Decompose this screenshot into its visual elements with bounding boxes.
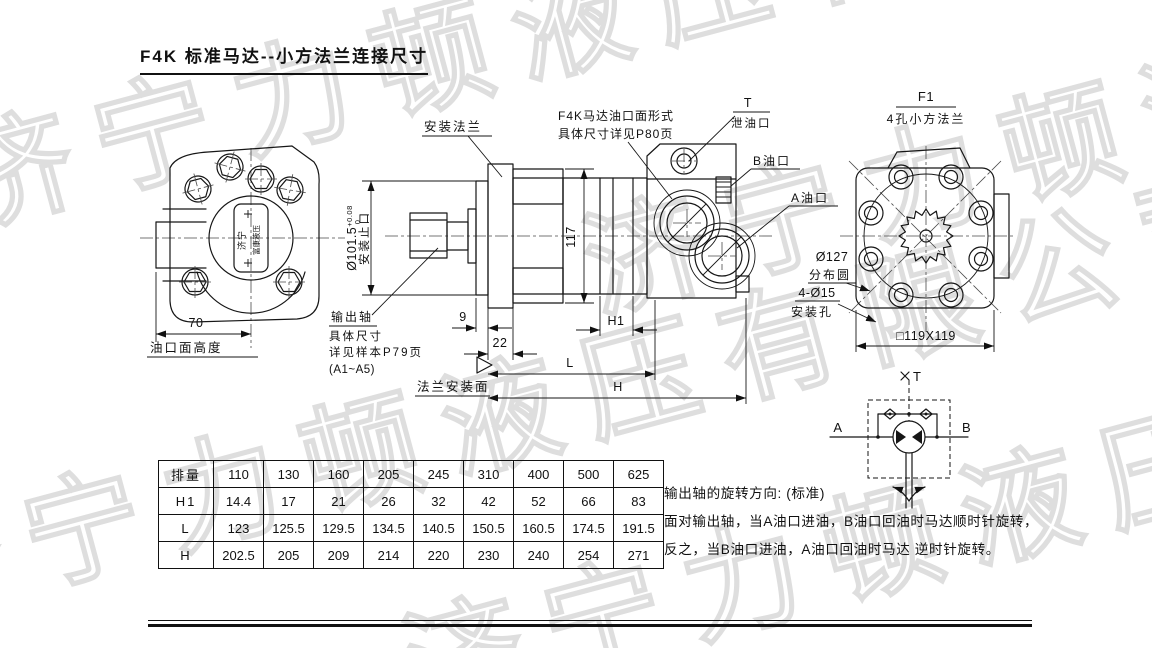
dim-70-value: 70 [189, 316, 204, 330]
a-port-label: A油口 [791, 191, 829, 205]
dim-h1-label: H1 [608, 314, 625, 328]
row-header: H1 [159, 488, 214, 515]
row-header: H [159, 542, 214, 569]
table-row: H 202.5205209214220230240254271 [159, 542, 664, 569]
f1-label: F1 [918, 89, 934, 104]
table-row: H1 14.41721263242526683 [159, 488, 664, 515]
output-shaft-label: 输出轴 [331, 309, 373, 324]
row-header: 排量 [159, 461, 214, 488]
schematic-a-label: A [833, 420, 842, 435]
drawing-page: 济宁力顿液压有限公司 济宁力顿液压有限公司 济宁力顿液压有限公司 济宁力顿液压有… [0, 0, 1152, 648]
output-shaft-note-1: 具体尺寸 [329, 329, 383, 343]
dim-l-label: L [566, 356, 573, 370]
port-face-note-2: 具体尺寸详见P80页 [558, 126, 673, 141]
pilot-spigot-label: 安装止口 [357, 211, 371, 265]
dimension-table: 排量 110130160205245310400500625 H1 14.417… [158, 460, 664, 569]
dim-22-value: 22 [493, 336, 508, 350]
drain-port-label: 泄油口 [731, 116, 772, 130]
port-face-note-1: F4K马达油口面形式 [558, 109, 674, 123]
dim-9-value: 9 [459, 310, 466, 324]
mounting-holes-dia: 4-Ø15 [798, 286, 835, 300]
schematic-t-label: T [913, 369, 921, 384]
table-row: 排量 110130160205245310400500625 [159, 461, 664, 488]
output-shaft-note-2: 详见样本P79页 [329, 345, 423, 359]
b-port-label: B油口 [753, 154, 791, 168]
rotation-notes: 输出轴的旋转方向: (标准) 面对输出轴，当A油口进油，B油口回油时马达顺时针旋… [664, 486, 1050, 570]
left-view-rear: 济宁 富康液压 70 油口面高度 [140, 146, 345, 357]
square-dim-value: □119X119 [896, 329, 956, 343]
table-row: L 123125.5129.5134.5140.5150.5160.5174.5… [159, 515, 664, 542]
schematic-b-label: B [962, 420, 971, 435]
t-port-label: T [744, 96, 752, 110]
rotation-note-line3: 反之，当B油口进油，A油口回油时马达 逆时针旋转。 [664, 542, 1050, 558]
right-view-flange: F1 4孔小方法兰 Ø127 分布圆 [791, 89, 1016, 352]
bolt-circle-dia: Ø127 [816, 250, 849, 264]
mounting-flange-label: 安装法兰 [424, 119, 482, 134]
nameplate-brand-city: 济宁 [236, 230, 247, 250]
port-face-height-label: 油口面高度 [150, 340, 223, 355]
mounting-pilot [476, 181, 488, 295]
datum-triangle [477, 357, 492, 373]
page-title: F4K 标准马达--小方法兰连接尺寸 [140, 42, 428, 75]
mounting-holes-label: 安装孔 [791, 304, 833, 319]
dim-h-label: H [613, 380, 623, 394]
output-shaft-note-3: (A1~A5) [329, 364, 375, 376]
rotation-note-line2: 面对输出轴，当A油口进油，B油口回油时马达顺时针旋转， [664, 514, 1050, 530]
bottom-border-rule [148, 620, 1032, 627]
bolt-circle-label: 分布圆 [809, 268, 851, 282]
flange-type-label: 4孔小方法兰 [887, 111, 966, 126]
flange-face-label: 法兰安装面 [417, 379, 490, 394]
plugged-port-icon [901, 372, 909, 380]
row-header: L [159, 515, 214, 542]
rotation-note-title: 输出轴的旋转方向: (标准) [664, 486, 1050, 502]
middle-view-side: Ø101.5+0.080 安装止口 117 H1 9 22 [329, 96, 838, 404]
dim-117-value: 117 [564, 226, 578, 247]
nameplate-brand-name: 富康液压 [251, 225, 261, 255]
